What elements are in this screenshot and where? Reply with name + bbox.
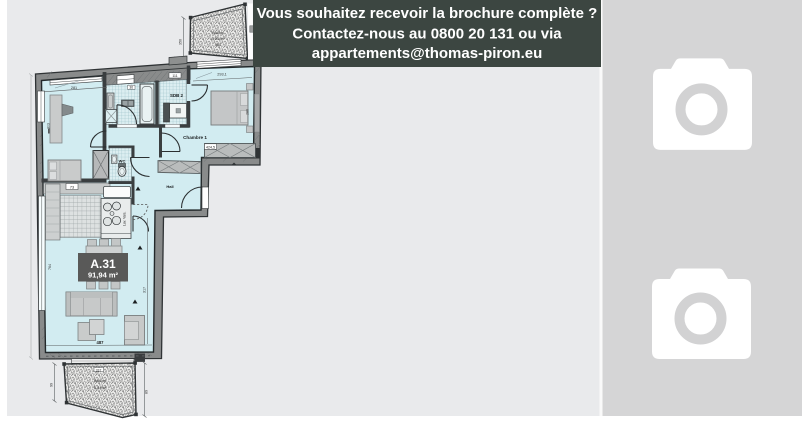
svg-text:317: 317 xyxy=(142,287,146,293)
svg-text:appartements@thomas-piron.eu: appartements@thomas-piron.eu xyxy=(312,45,543,62)
svg-text:Chambre 1: Chambre 1 xyxy=(183,135,207,140)
svg-text:303: 303 xyxy=(47,123,51,129)
svg-text:4,51 m²: 4,51 m² xyxy=(212,37,226,41)
svg-text:424,5: 424,5 xyxy=(206,145,215,149)
svg-text:293,1: 293,1 xyxy=(217,73,227,77)
svg-text:337: 337 xyxy=(96,368,102,372)
svg-text:487: 487 xyxy=(97,340,105,345)
svg-text:73: 73 xyxy=(70,185,74,189)
svg-text:A.31: A.31 xyxy=(90,257,116,271)
svg-text:Vous souhaitez recevoir la bro: Vous souhaitez recevoir la brochure comp… xyxy=(257,5,598,22)
svg-text:Balcon: Balcon xyxy=(212,31,224,35)
svg-text:764: 764 xyxy=(48,264,52,270)
svg-text:111: 111 xyxy=(172,74,177,78)
svg-text:Balcon: Balcon xyxy=(94,378,106,383)
svg-text:6,34m²: 6,34m² xyxy=(94,385,107,390)
svg-text:89: 89 xyxy=(145,390,149,394)
svg-text:350: 350 xyxy=(179,39,183,45)
svg-text:91,94 m²: 91,94 m² xyxy=(88,271,119,280)
svg-text:280: 280 xyxy=(246,109,250,115)
svg-text:Hall: Hall xyxy=(166,184,173,189)
svg-text:SDB 2: SDB 2 xyxy=(170,93,183,98)
svg-text:Contactez-nous au 0800 20 131: Contactez-nous au 0800 20 131 ou via xyxy=(292,26,562,43)
svg-text:99: 99 xyxy=(50,383,54,387)
svg-text:36: 36 xyxy=(129,86,133,90)
svg-text:WC: WC xyxy=(119,158,126,163)
svg-text:360: 360 xyxy=(215,43,221,47)
svg-text:Lav. Vais.: Lav. Vais. xyxy=(123,212,127,226)
svg-text:281: 281 xyxy=(71,86,77,90)
